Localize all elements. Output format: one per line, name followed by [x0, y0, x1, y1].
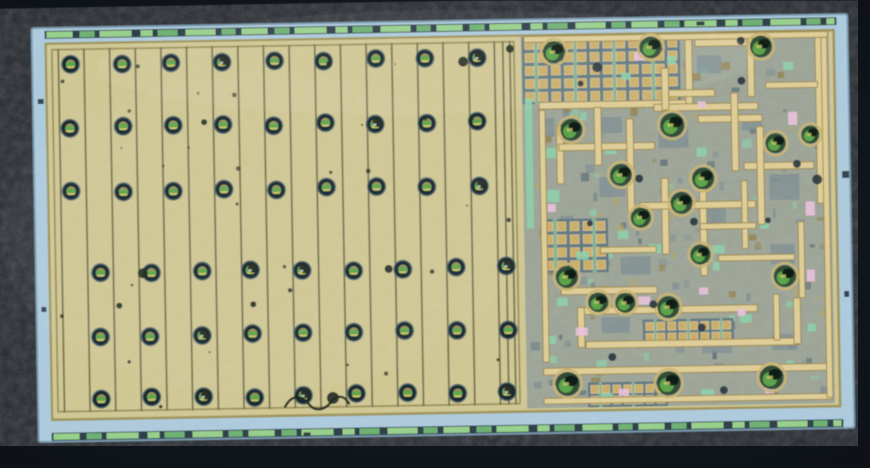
die-photomicrograph — [0, 0, 870, 468]
die — [0, 3, 856, 444]
die-photo-viewport — [0, 0, 870, 468]
